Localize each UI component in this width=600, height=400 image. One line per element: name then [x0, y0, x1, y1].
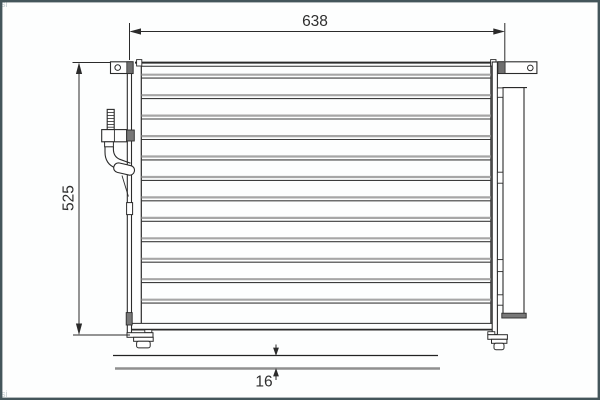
dimension-depth-16: 16: [113, 345, 440, 391]
dimension-width-638: 638: [130, 13, 505, 61]
drier-mount-tabs: [497, 88, 503, 305]
arrowhead-down: [273, 348, 279, 356]
core-tube-lines: [142, 75, 491, 303]
drier-bottom-cap: [502, 313, 526, 318]
arrowhead-bottom: [76, 324, 82, 336]
dimension-height-label: 525: [61, 185, 78, 211]
bottom-left-foot: [127, 330, 153, 348]
arrowhead-right: [493, 28, 505, 34]
fitting-hatch-block: [127, 130, 135, 141]
drawing-canvas: si si: [0, 0, 600, 400]
dimension-height-525: 525: [61, 63, 131, 336]
bottom-right-foot: [488, 332, 508, 350]
bracket-hole: [115, 65, 121, 71]
top-right-bracket: [498, 62, 537, 74]
dimension-width-label: 638: [302, 13, 328, 30]
receiver-drier: [497, 88, 527, 318]
arrowhead-top: [76, 63, 82, 75]
top-left-bracket: [111, 62, 134, 74]
condenser-technical-drawing: si si: [0, 0, 600, 400]
arrowhead-left: [130, 28, 142, 34]
bracket-hole: [528, 65, 534, 71]
dimension-depth-label: 16: [255, 374, 272, 391]
left-header-tank: [126, 62, 132, 335]
right-header-tank: [492, 62, 497, 335]
condenser-core: [132, 60, 497, 330]
